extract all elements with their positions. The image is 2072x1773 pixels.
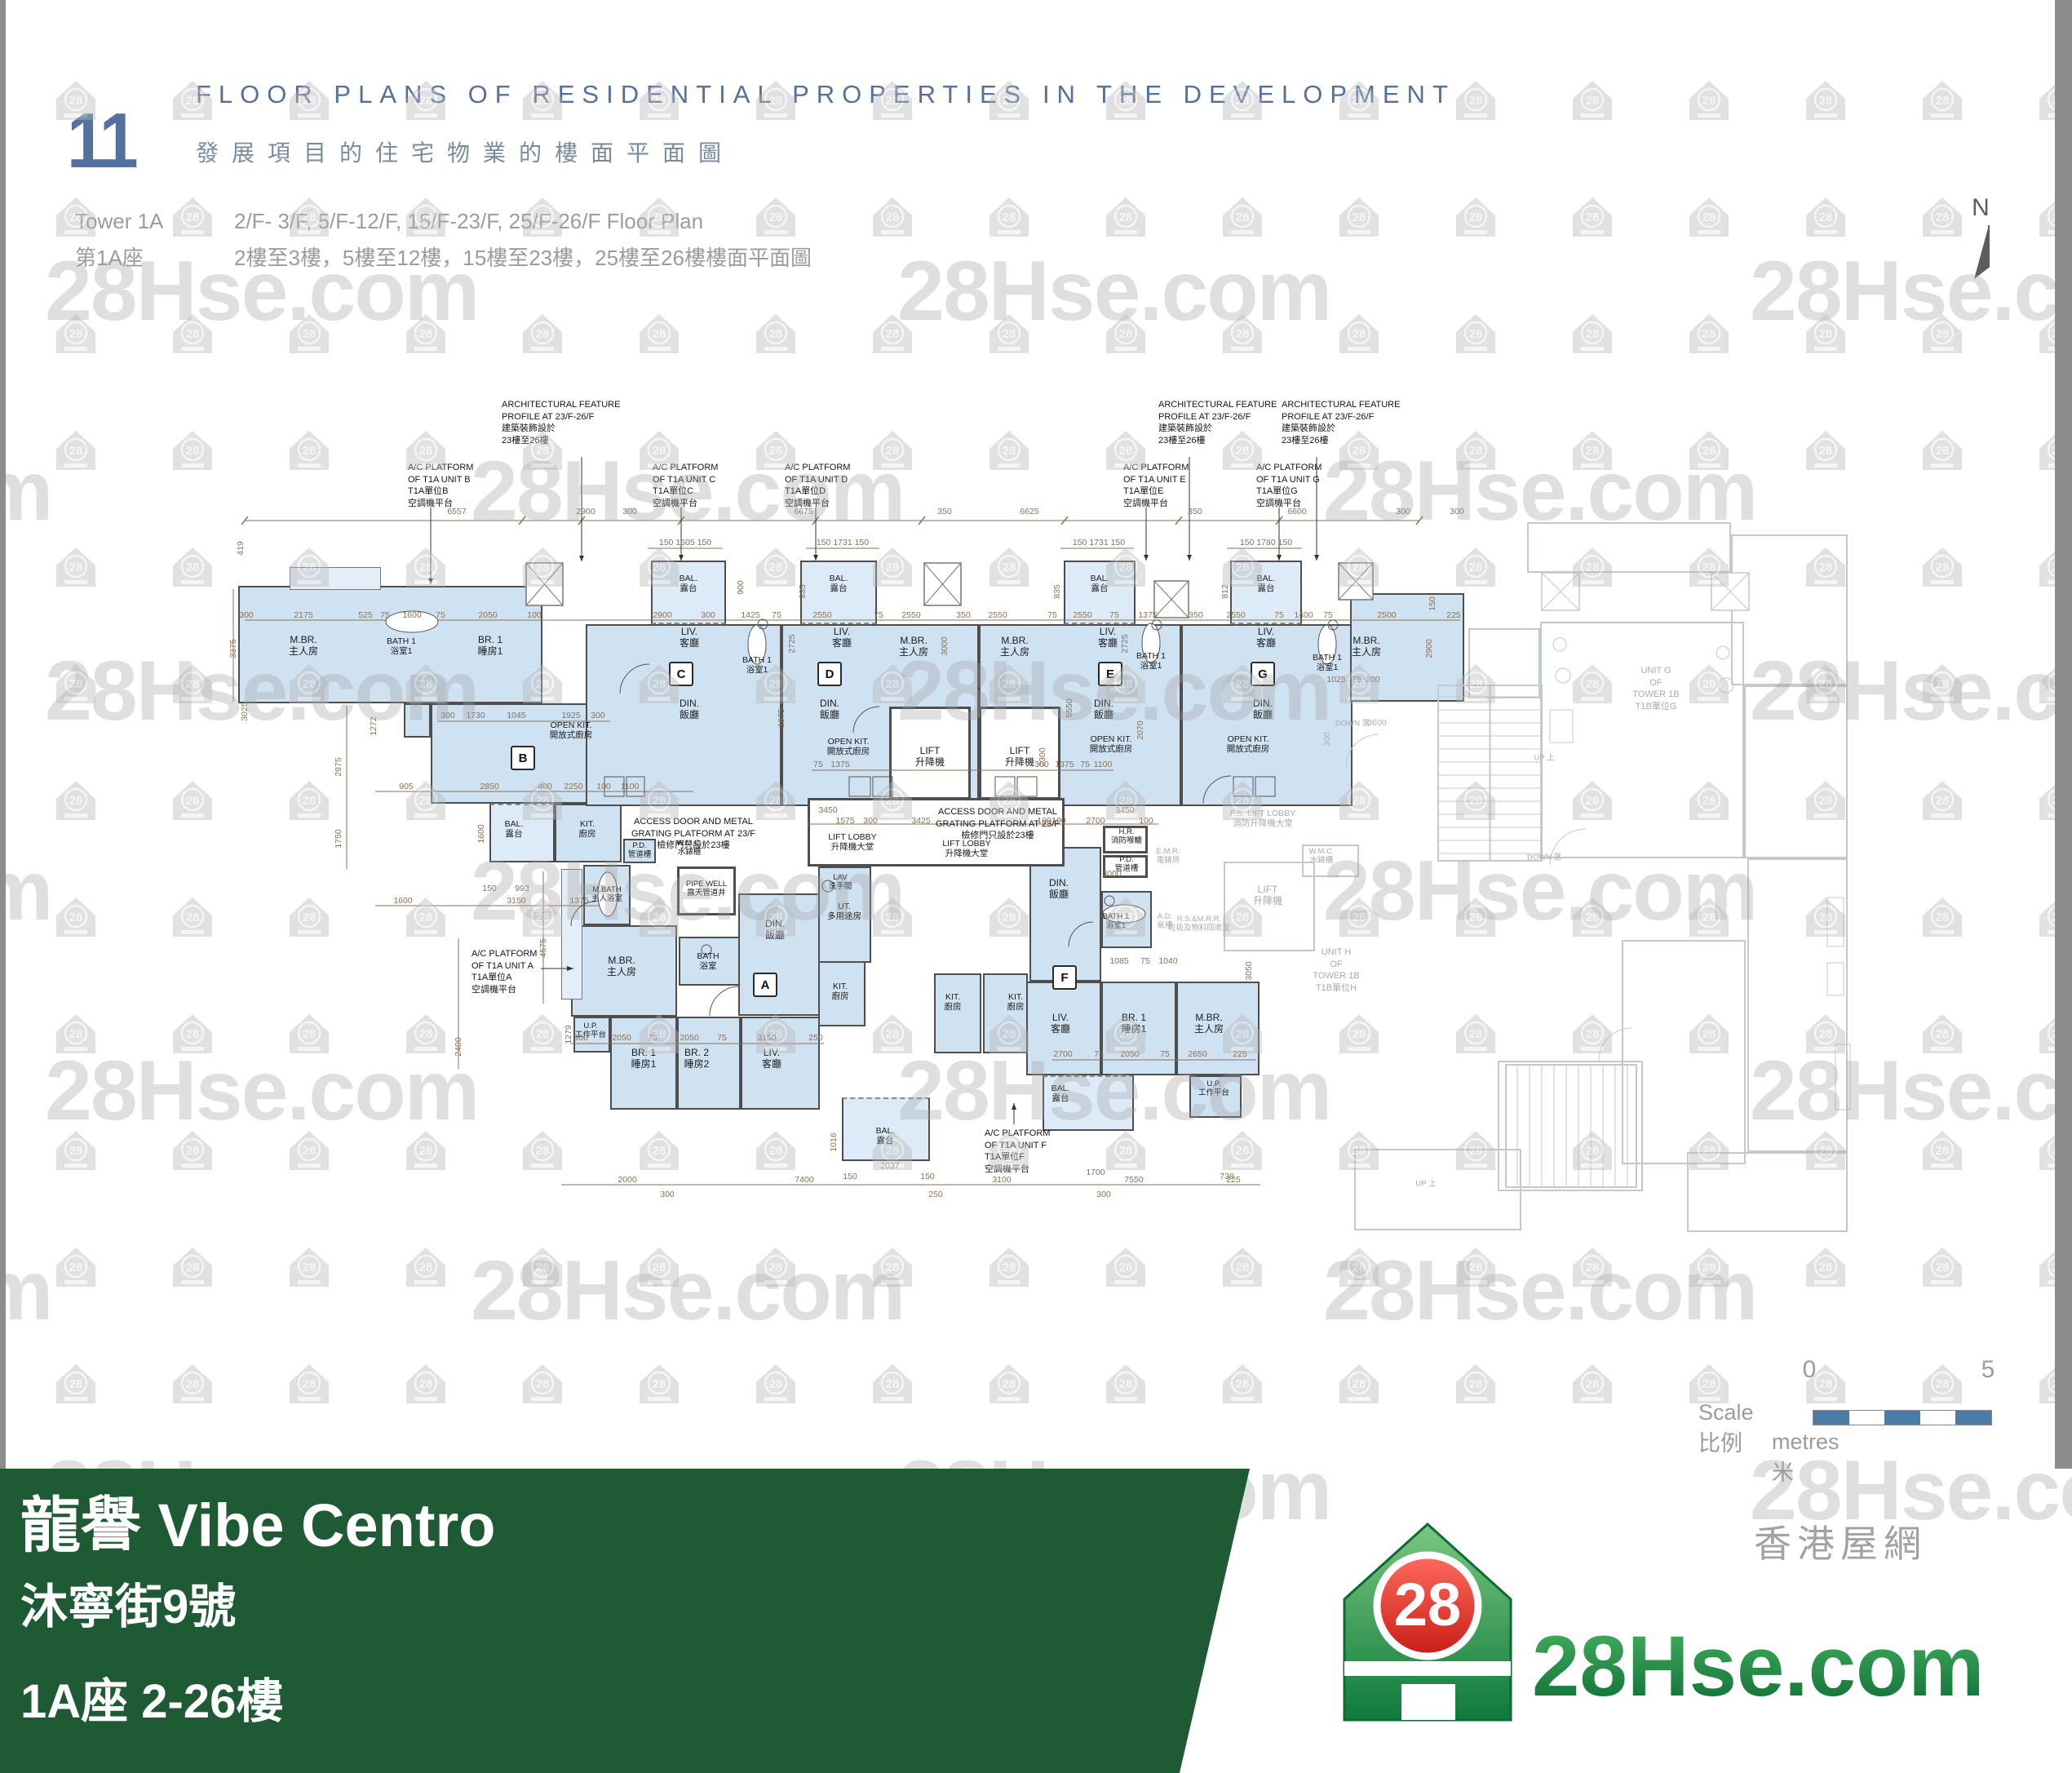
room-label-zh: 露台 — [680, 583, 698, 593]
tower-name-zh: 第1A座 — [75, 242, 144, 272]
dim-label: 1040 — [1158, 956, 1177, 966]
room-label: LIFT LOBBY升降機大堂 — [828, 832, 876, 852]
dim-label: 150 1731 150 — [1073, 538, 1125, 547]
dim-label: 300 — [1034, 760, 1049, 769]
dim-label: 2550 — [812, 610, 831, 620]
room-label-zh: 主人房 — [1000, 647, 1029, 658]
room-label-en: OPEN KIT. — [1227, 734, 1270, 744]
room-label-en: LIFT — [915, 746, 945, 757]
section-number: 11 — [67, 96, 135, 186]
annotation-line: OF T1A UNIT G — [1256, 474, 1322, 486]
dim-label: 75 — [874, 610, 883, 620]
room-label: M.BR.主人房 — [899, 636, 928, 658]
room-label-zh: 浴室1 — [1313, 663, 1342, 672]
room-label-zh: 垃圾及物料回收室 — [1168, 924, 1230, 933]
room-label: UP 上 — [1415, 1181, 1436, 1190]
annotation-label: A/C PLATFORMOF T1A UNIT FT1A單位F空調機平台 — [985, 1128, 1050, 1175]
room-label-en: KIT. — [945, 992, 962, 1002]
room-label-en: BAL. — [1051, 1084, 1070, 1093]
tower1b-block — [1354, 1149, 1521, 1230]
room-label-en: BR. 1 — [631, 1048, 657, 1059]
scale-segment — [1849, 1411, 1885, 1425]
dim-label: 150 1605 150 — [659, 538, 711, 547]
room-label-zh: 升降機大堂 — [828, 842, 876, 852]
room-label-en: LIV. — [680, 627, 699, 638]
dim-label: 2050 — [1120, 1049, 1139, 1059]
dim-label: 1375 — [1138, 610, 1157, 620]
unit-letter-box: B — [511, 746, 535, 770]
annotation-line: 空調機平台 — [653, 498, 718, 510]
room-label-en: F.S. LIFT LOBBY — [1230, 809, 1295, 818]
room-label: BAL.露台 — [1257, 574, 1276, 593]
dim-label: 1575 — [835, 816, 854, 826]
dim-label: 3025 — [240, 702, 250, 720]
annotation-line: T1A單位C — [653, 485, 718, 498]
annotation-label: ARCHITECTURAL FEATUREPROFILE AT 23/F-26/… — [502, 399, 620, 446]
room-label-en: BR. 1 — [478, 635, 503, 646]
page-title: FLOOR PLANS OF RESIDENTIAL PROPERTIES IN… — [196, 80, 1455, 109]
annotation-line: PROFILE AT 23/F-26/F — [1282, 411, 1400, 423]
room-label-zh: 消防喉轆 — [1111, 837, 1142, 846]
dim-label: 150 — [482, 884, 497, 893]
room-label-en: DIN. — [765, 919, 785, 930]
room-label: LIV.客廳 — [1098, 627, 1118, 649]
annotation-line: T1B單位G — [1632, 701, 1679, 713]
annotation-line: GRATING PLATFORM AT 23/F — [631, 828, 755, 840]
dim-label: 100 — [527, 610, 542, 620]
dim-label: 1272 — [369, 716, 379, 735]
dim-label: 2000 — [618, 1175, 636, 1185]
room-label-en: BR. 2 — [684, 1048, 710, 1059]
dim-label: 300 — [1366, 675, 1380, 685]
room-label: BATH浴室 — [697, 951, 719, 971]
project-floors: 1A座 2-26樓 — [20, 1663, 283, 1731]
dim-label: 1375 — [830, 760, 849, 769]
dim-label: 2650 — [1188, 1049, 1206, 1059]
dim-label: 2500 — [1377, 610, 1396, 620]
dim-label: 1085 — [1109, 956, 1128, 966]
room-label-zh: 飯廳 — [1094, 710, 1113, 721]
dim-label: 2050 — [680, 1033, 698, 1043]
dim-label: 350 — [1188, 507, 1202, 516]
room-label: DOWN 落 — [1527, 854, 1561, 863]
dim-label: 300 — [1096, 1190, 1111, 1199]
room-label-en: OPEN KIT. — [1090, 734, 1133, 744]
room-label: M.BR.主人房 — [1194, 1013, 1224, 1035]
dim-label: 300 — [622, 507, 637, 516]
annotation-line: T1A單位A — [472, 972, 537, 984]
dim-label: 1100 — [621, 782, 640, 791]
dim-label: 2850 — [480, 782, 498, 791]
room-label-zh: 廚房 — [579, 829, 596, 839]
annotation-label: UNIT HOFTOWER 1BT1B單位H — [1313, 946, 1359, 994]
room-label: LIV.客廳 — [1051, 1013, 1070, 1035]
annotation-line: 空調機平台 — [472, 984, 537, 996]
room-label-zh: 消防升降機大堂 — [1230, 818, 1295, 828]
room-label: LIFT升降機 — [915, 746, 945, 769]
room-label-en: LIV. — [1098, 627, 1118, 638]
dim-label: 6675 — [794, 507, 812, 516]
room-label-en: DOWN 落 — [1527, 854, 1561, 863]
room-label-zh: 露台 — [1257, 583, 1276, 593]
dim-label: 1750 — [334, 829, 343, 848]
room-label-en: DIN. — [1253, 698, 1273, 710]
annotation-line: OF T1A UNIT E — [1123, 474, 1189, 486]
dim-label: 75 — [648, 1033, 657, 1043]
room-label: KIT.廚房 — [579, 819, 596, 839]
room-label-en: M.BR. — [899, 636, 928, 647]
tower1b-block — [1687, 1152, 1848, 1232]
dim-label: 75 — [1352, 675, 1361, 685]
annotation-label: A/C PLATFORMOF T1A UNIT ET1A單位E空調機平台 — [1123, 462, 1189, 509]
room-label: OPEN KIT.開放式廚房 — [827, 737, 870, 756]
dim-label: 2070 — [1136, 720, 1145, 739]
annotation-line: 建築裝飾設於 — [1158, 423, 1277, 435]
svg-text:28: 28 — [1394, 1571, 1461, 1638]
dim-label: 7550 — [1124, 1175, 1143, 1185]
dim-label: 300 — [660, 1190, 675, 1199]
room-label-en: DIN. — [1049, 878, 1069, 889]
28hse-logo-icon: 28 28Hse.com — [1330, 1501, 2048, 1738]
annotation-line: A/C PLATFORM — [472, 948, 537, 960]
ac-platform-block — [561, 869, 582, 1000]
room-label-en: BAL. — [876, 1126, 895, 1136]
dim-label: 1100 — [1094, 760, 1113, 769]
dim-label: 1600 — [476, 824, 486, 843]
annotation-line: PROFILE AT 23/F-26/F — [1158, 411, 1277, 423]
floor-range: 2/F- 3/F, 5/F-12/F, 15/F-23/F, 25/F-26/F… — [234, 209, 703, 234]
annotation-line: T1B單位H — [1313, 982, 1359, 995]
annotation-label: ARCHITECTURAL FEATUREPROFILE AT 23/F-26/… — [1158, 399, 1277, 446]
annotation-line: OF — [1313, 959, 1359, 971]
room-label: H.R.消防喉轆 — [1111, 828, 1142, 846]
room-label: BAL.露台 — [1051, 1084, 1070, 1103]
room-label-en: BATH 1 — [1313, 653, 1342, 663]
room-label-en: BATH 1 — [1136, 651, 1166, 661]
annotation-line: ARCHITECTURAL FEATURE — [502, 399, 620, 411]
annotation-line: 檢修門只設於23樓 — [936, 830, 1060, 842]
annotation-line: 23樓至26樓 — [502, 435, 620, 447]
room-label-en: OPEN KIT. — [550, 720, 593, 730]
room-label-en: UP 上 — [1534, 755, 1554, 764]
room-label: E.M.R.電錶房 — [1156, 848, 1180, 866]
annotation-label: ACCESS DOOR AND METALGRATING PLATFORM AT… — [631, 816, 755, 852]
tower1b-block — [1468, 628, 1540, 698]
dim-label: 75 — [813, 760, 823, 769]
annotation-line: PROFILE AT 23/F-26/F — [502, 411, 620, 423]
annotation-line: OF T1A UNIT F — [985, 1140, 1050, 1152]
room-label: LIFT升降機 — [1253, 884, 1282, 907]
room-label-zh: 客廳 — [832, 638, 852, 649]
room-label: BATH 1浴室1 — [1313, 653, 1342, 672]
dim-label: 400 — [538, 782, 552, 791]
project-address: 沐寧街9號 — [20, 1568, 236, 1637]
dim-label: 3100 — [992, 1175, 1011, 1185]
room-label-zh: 電錶房 — [1156, 857, 1180, 866]
dim-label: 350 — [1189, 610, 1203, 620]
dim-label: 300 — [863, 816, 878, 826]
room-label-zh: 氣槽 — [1157, 922, 1172, 931]
floor-range-zh: 2樓至3樓，5樓至12樓，15樓至23樓，25樓至26樓樓面平面圖 — [234, 242, 812, 272]
dim-label: 3150 — [507, 896, 525, 906]
dim-label: 2550 — [988, 610, 1007, 620]
dim-label: 75 — [1080, 760, 1090, 769]
room-label-en: BATH 1 — [742, 655, 772, 665]
room-label-zh: 露天管道井 — [686, 889, 727, 898]
room-label: BAL.露台 — [1091, 574, 1109, 593]
dim-label: 1600 — [393, 896, 412, 906]
room-label-en: UP 上 — [1415, 1181, 1436, 1190]
dim-label: 1975 — [777, 708, 786, 727]
dim-label: 900 — [736, 580, 746, 595]
room-label-zh: 洗手間 — [829, 883, 852, 892]
dim-label: 75 — [1274, 610, 1284, 620]
room-label: F.S. LIFT LOBBY消防升降機大堂 — [1230, 809, 1295, 828]
room-label: M.BR.主人房 — [1000, 636, 1029, 658]
annotation-line: T1A單位F — [985, 1151, 1050, 1164]
tower1b-block — [1744, 685, 1848, 858]
room-label: OPEN KIT.開放式廚房 — [550, 720, 593, 740]
room-label-en: OPEN KIT. — [827, 737, 870, 747]
room-label-zh: 睡房2 — [684, 1059, 710, 1070]
room-label-en: LIFT — [1253, 884, 1282, 896]
annotation-line: 檢修門只設於23樓 — [631, 840, 755, 852]
dim-label: 525 — [358, 610, 373, 620]
dim-label: 3150 — [757, 1033, 776, 1043]
dim-label: 2875 — [334, 757, 343, 776]
room-label-en: M.BR. — [1000, 636, 1029, 647]
dim-label: 3050 — [1244, 961, 1254, 980]
unit-letter-box: F — [1052, 965, 1077, 990]
dim-label: 993 — [515, 884, 529, 893]
dim-label: 2550 — [1226, 610, 1245, 620]
dim-label: 75 — [1160, 1049, 1170, 1059]
room-label-en: M.BR. — [1352, 636, 1381, 647]
room-label: DIN.飯廳 — [1094, 698, 1113, 721]
page-edge-right — [2055, 0, 2072, 1469]
dim-label: 2175 — [294, 610, 312, 620]
room-label-zh: 露台 — [1051, 1093, 1070, 1103]
room-label-zh: 客廳 — [1098, 638, 1118, 649]
dim-label: 3000 — [1102, 869, 1121, 879]
room-label: BAL.露台 — [505, 819, 524, 839]
annotation-line: T1A單位D — [785, 485, 850, 498]
room-label: BAL.露台 — [830, 574, 848, 593]
annotation-line: OF T1A UNIT B — [408, 474, 473, 486]
dim-label: 300 — [573, 1033, 588, 1043]
compass-label: N — [1964, 194, 1997, 222]
tower-name: Tower 1A — [75, 209, 163, 234]
room-label-zh: 主人房 — [607, 967, 636, 978]
annotation-line: TOWER 1B — [1313, 970, 1359, 982]
annotation-line: A/C PLATFORM — [985, 1128, 1050, 1140]
dim-label: 1025 — [1326, 675, 1345, 685]
annotation-line: UNIT H — [1313, 946, 1359, 959]
dim-label: 6625 — [1020, 507, 1038, 516]
unit-letter-box: E — [1098, 662, 1122, 686]
room-label: DIN.飯廳 — [1253, 698, 1273, 721]
room-label-en: BATH — [697, 951, 719, 961]
room-label: R.S.&M.R.R.垃圾及物料回收室 — [1168, 915, 1230, 933]
annotation-line: ARCHITECTURAL FEATURE — [1158, 399, 1277, 411]
room-label: A.D.氣槽 — [1157, 913, 1172, 931]
dim-label: 75 — [380, 610, 390, 620]
room-label: U.P.工作平台 — [1198, 1080, 1229, 1098]
room-block — [934, 973, 981, 1053]
room-label-zh: 主人房 — [1352, 647, 1381, 658]
project-name: 龍譽 Vibe Centro — [20, 1477, 496, 1564]
annotation-line: A/C PLATFORM — [785, 462, 850, 474]
annotation-line: ARCHITECTURAL FEATURE — [1282, 399, 1400, 411]
dim-label: 300 — [701, 610, 715, 620]
dim-label: 1425 — [741, 610, 759, 620]
room-label-en: LIV. — [832, 627, 852, 638]
room-label-zh: 開放式廚房 — [1090, 744, 1133, 754]
dim-label: 3600 — [1367, 718, 1386, 728]
dim-label: 2900 — [653, 610, 671, 620]
room-label-zh: 主人房 — [289, 646, 318, 658]
annotation-label: A/C PLATFORMOF T1A UNIT DT1A單位D空調機平台 — [785, 462, 850, 509]
dim-label: 3450 — [818, 805, 837, 815]
dim-label: 2250 — [564, 782, 582, 791]
annotation-line: TOWER 1B — [1632, 689, 1679, 701]
scale-segment — [1884, 1411, 1920, 1425]
compass: N — [1964, 194, 1997, 290]
room-label: M.BR.主人房 — [289, 635, 318, 658]
room-label-zh: 開放式廚房 — [827, 747, 870, 756]
dim-label: 1925 — [561, 711, 580, 720]
annotation-line: UNIT G — [1632, 665, 1679, 677]
dim-label: 75 — [1094, 1049, 1104, 1059]
annotation-label: A/C PLATFORMOF T1A UNIT CT1A單位C空調機平台 — [653, 462, 718, 509]
logo-house-icon: 28 — [1344, 1524, 1511, 1720]
room-label: BATH 1浴室1 — [1103, 913, 1130, 931]
room-label: DIN.飯廳 — [765, 919, 785, 942]
dim-label: 5550 — [1065, 698, 1074, 717]
annotation-label: A/C PLATFORMOF T1A UNIT AT1A單位A空調機平台 — [472, 948, 537, 995]
room-label-zh: 睡房1 — [478, 646, 503, 658]
dim-label: 75 — [772, 610, 781, 620]
room-label: M.BR.主人房 — [607, 955, 636, 978]
annotation-label: A/C PLATFORMOF T1A UNIT GT1A單位G空調機平台 — [1256, 462, 1322, 509]
annotation-line: 空調機平台 — [1123, 498, 1189, 510]
room-label: M.BR.主人房 — [1352, 636, 1381, 658]
room-label-en: BATH 1 — [387, 636, 416, 646]
room-label: BATH 1浴室1 — [1136, 651, 1166, 671]
dim-label: 300 — [441, 711, 455, 720]
annotation-label: UNIT GOFTOWER 1BT1B單位G — [1632, 665, 1679, 712]
ac-platform-block — [290, 567, 381, 590]
dim-label: 1375 — [569, 896, 588, 906]
room-label-zh: 浴室 — [697, 961, 719, 971]
room-label: KIT.廚房 — [832, 982, 849, 1001]
dim-label: 2550 — [1073, 610, 1091, 620]
dim-label: 1279 — [564, 1025, 573, 1044]
annotation-line: A/C PLATFORM — [653, 462, 718, 474]
annotation-line: 23樓至26樓 — [1158, 435, 1277, 447]
dim-label: 100 — [1139, 816, 1153, 826]
unit-letter-box: C — [669, 662, 693, 686]
dim-label: 812 — [1220, 584, 1230, 599]
site-logo: 28 28Hse.com — [1330, 1501, 2064, 1746]
room-label-zh: 飯廳 — [680, 710, 699, 721]
room-label: BR. 1睡房1 — [631, 1048, 657, 1070]
annotation-line: A/C PLATFORM — [408, 462, 473, 474]
dim-label: 2725 — [787, 634, 797, 653]
scale-tick-5: 5 — [1981, 1356, 1995, 1384]
room-label-en: DOWN 落 — [1335, 720, 1370, 729]
unit-letter-box: D — [817, 662, 842, 686]
room-label-en: M.BR. — [289, 635, 318, 646]
scale-label: Scale 比例 — [1698, 1400, 1754, 1457]
dim-label: 835 — [798, 584, 808, 599]
dim-label: 75 — [1109, 610, 1119, 620]
dim-label: 6557 — [447, 507, 466, 516]
room-label: LIV.客廳 — [680, 627, 699, 649]
room-label-en: LIV. — [762, 1048, 781, 1059]
project-banner: 龍譽 Vibe Centro 沐寧街9號 1A座 2-26樓 — [0, 1469, 1256, 1773]
dim-label: 300 — [1396, 507, 1410, 516]
dim-label: 75 — [1323, 610, 1333, 620]
room-block — [983, 973, 1028, 1053]
room-block — [1029, 847, 1101, 982]
dim-label: 4575 — [538, 938, 548, 957]
dim-label: 100 — [596, 782, 611, 791]
unit-letter-box: A — [753, 973, 777, 997]
dim-label: 2037 — [880, 1161, 899, 1171]
dim-label: 3425 — [911, 816, 930, 826]
room-label: BAL.露台 — [876, 1126, 895, 1146]
room-label-zh: 主人房 — [899, 647, 928, 658]
room-label-zh: 開放式廚房 — [1227, 744, 1270, 754]
dim-label: 150 1780 150 — [1240, 538, 1292, 547]
north-arrow-icon — [1964, 222, 1997, 286]
room-label-zh: 浴室1 — [1136, 661, 1166, 671]
dim-label: 100 — [1051, 816, 1066, 826]
scale-segment — [1955, 1411, 1991, 1425]
room-label: W.M.C.水錶櫃 — [1308, 848, 1334, 866]
room-label-zh: 浴室1 — [387, 646, 416, 656]
room-label: DIN.飯廳 — [680, 698, 699, 721]
room-label-zh: 主人浴室 — [591, 895, 622, 904]
dim-label: 419 — [236, 541, 246, 556]
room-label: OPEN KIT.開放式廚房 — [1090, 734, 1133, 754]
page-title-zh: 發展項目的住宅物業的樓面平面圖 — [196, 135, 734, 168]
dim-label: 6600 — [1287, 507, 1306, 516]
dim-label: 3375 — [228, 639, 238, 658]
room-label-en: BAL. — [1091, 574, 1109, 583]
room-label-en: LIV. — [1051, 1013, 1070, 1024]
dim-label: 225 — [1233, 1049, 1247, 1059]
dim-label: 225 — [1446, 610, 1461, 620]
dim-label: 300 — [591, 711, 605, 720]
room-label-en: DIN. — [680, 698, 699, 710]
room-block — [404, 703, 431, 738]
tower1b-block — [1747, 858, 1848, 1152]
room-label-en: DIN. — [820, 698, 839, 710]
annotation-line: 建築裝飾設於 — [502, 423, 620, 435]
room-label-zh: 主人房 — [1194, 1024, 1224, 1035]
annotation-line: OF — [1632, 677, 1679, 689]
room-label-en: UT. — [827, 902, 861, 911]
room-label-zh: 客廳 — [680, 638, 699, 649]
annotation-line: A/C PLATFORM — [1123, 462, 1189, 474]
room-label: LAV洗手間 — [829, 874, 852, 892]
scale-bar-segments — [1813, 1410, 1992, 1425]
room-label-en: BAL. — [1257, 574, 1276, 583]
room-label-zh: 客廳 — [762, 1059, 781, 1070]
annotation-line: OF T1A UNIT D — [785, 474, 850, 486]
